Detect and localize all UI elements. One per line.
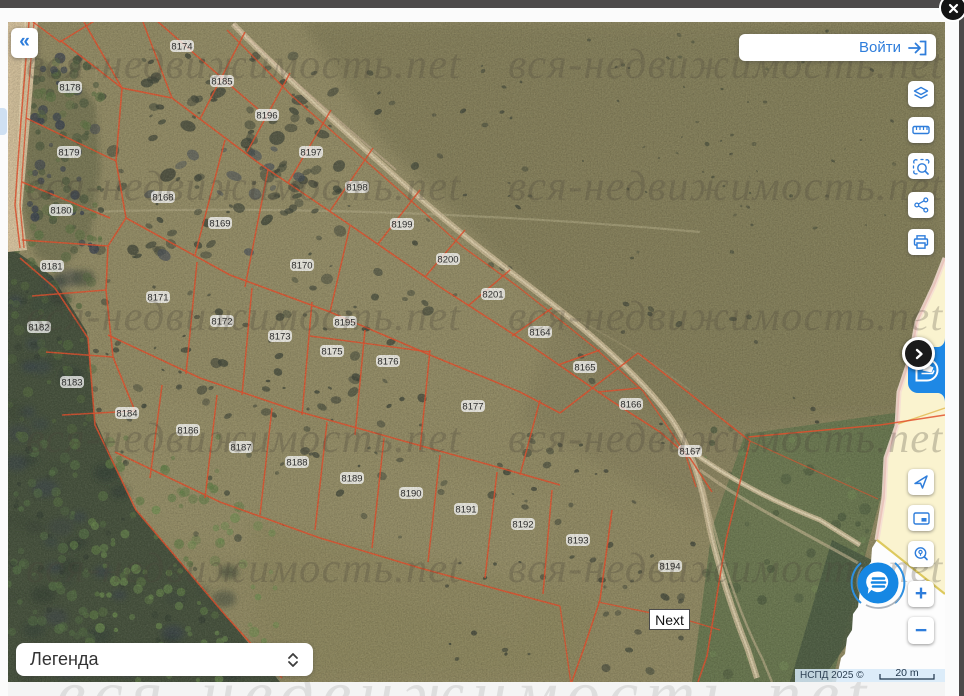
svg-text:вся-недвижимость.net: вся-недвижимость.net bbox=[26, 545, 461, 592]
svg-text:вся-недвижимость.net: вся-недвижимость.net bbox=[26, 41, 461, 88]
svg-text:вся-недвижимость.net: вся-недвижимость.net bbox=[508, 545, 943, 592]
svg-text:вся-недвижимость.net: вся-недвижимость.net bbox=[508, 41, 943, 88]
svg-text:вся-недвижимость.net: вся-недвижимость.net bbox=[508, 163, 943, 210]
svg-text:вся-недвижимость.net: вся-недвижимость.net bbox=[26, 293, 461, 340]
svg-text:вся-недвижимость.net: вся-недвижимость.net bbox=[508, 293, 943, 340]
svg-text:вся-недвижимость.net: вся-недвижимость.net bbox=[508, 415, 943, 462]
svg-text:вся-недвижимость.net: вся-недвижимость.net bbox=[26, 163, 461, 210]
svg-text:вся-недвижимость.net: вся-недвижимость.net bbox=[26, 415, 461, 462]
